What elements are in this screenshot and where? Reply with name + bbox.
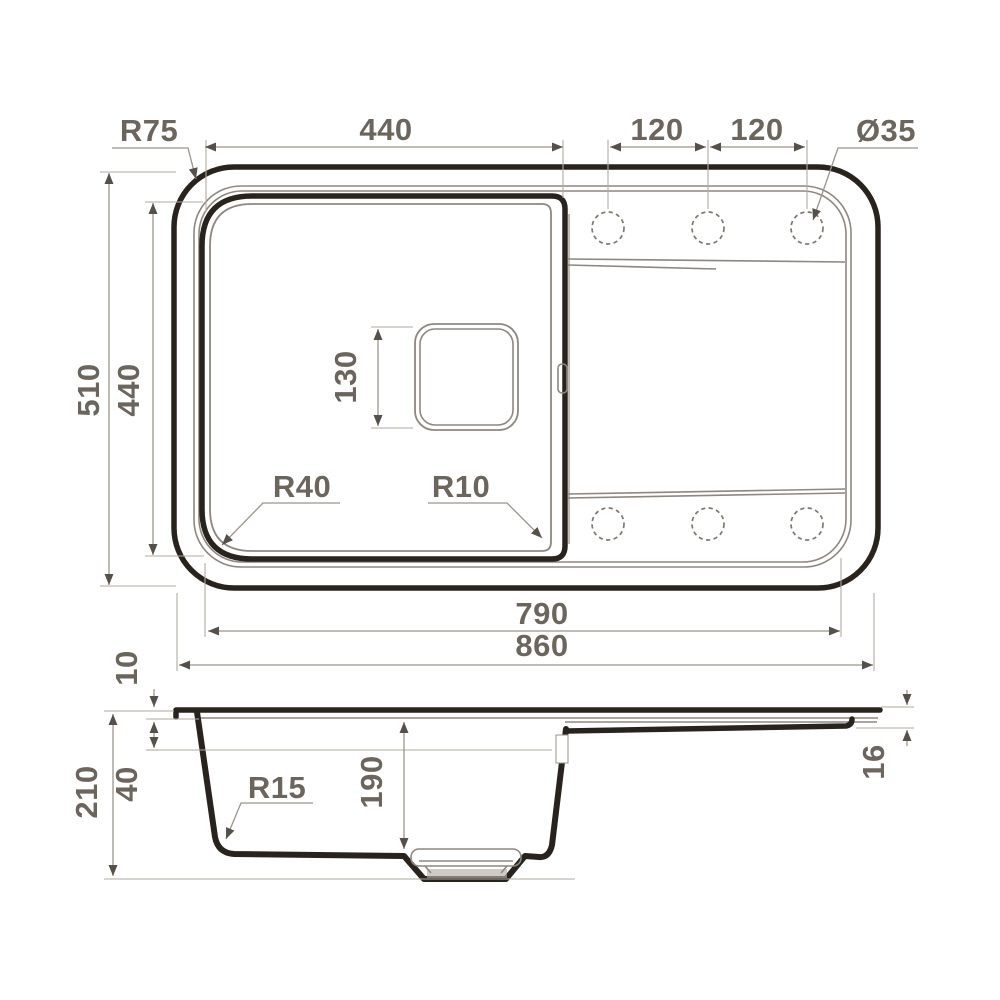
- label-hole-diameter: Ø35: [856, 113, 916, 148]
- tap-hole: [692, 508, 724, 540]
- bowl-inner-edge: [210, 204, 551, 551]
- label-hole-spacing-2: 120: [730, 112, 783, 147]
- bowl-outline: [202, 196, 565, 559]
- sink-dimension-drawing: R75 440 120 120 Ø35 510 440 130 R40 R10 …: [0, 0, 1000, 1000]
- tap-hole: [592, 508, 624, 540]
- label-rim-height: 10: [109, 650, 144, 685]
- label-radius-bowl-left: R40: [273, 469, 331, 504]
- label-drain-square: 130: [328, 350, 363, 403]
- label-bowl-depth: 190: [354, 755, 389, 808]
- section-drainboard-underside: [567, 719, 852, 731]
- label-bowl-height: 440: [111, 363, 146, 416]
- plan-view: [174, 167, 878, 588]
- label-inner-width: 790: [515, 596, 568, 631]
- drainboard-surface-lines: [568, 259, 845, 498]
- leader-radius-bowl-left: [222, 503, 340, 545]
- section-dimensions: 10 40 210 190 R15 16: [69, 650, 914, 879]
- tap-hole: [791, 212, 823, 244]
- drawing-page: R75 440 120 120 Ø35 510 440 130 R40 R10 …: [0, 0, 1000, 1000]
- drain-square: [415, 324, 518, 430]
- leader-hole-diameter: [813, 148, 918, 220]
- rim-edge-inner-line: [199, 191, 846, 562]
- leader-radius-bowl-right: [428, 503, 542, 538]
- drain-fitting: [411, 849, 521, 878]
- leader-radius-bottom: [226, 803, 313, 839]
- rim-edge-outer-line: [194, 186, 851, 567]
- tap-hole: [791, 508, 823, 540]
- tap-hole: [692, 212, 724, 244]
- sink-outer-edge: [174, 167, 878, 588]
- tap-hole: [592, 212, 624, 244]
- label-radius-bowl-right: R10: [432, 469, 490, 504]
- section-overflow-slot: [556, 735, 568, 763]
- label-radius-outer-corner: R75: [120, 113, 178, 148]
- label-hole-spacing-1: 120: [630, 112, 683, 147]
- label-overall-depth: 210: [69, 765, 104, 818]
- label-radius-bottom: R15: [248, 770, 306, 805]
- section-rim-top: [176, 710, 880, 717]
- label-overall-width: 860: [515, 628, 568, 663]
- label-bowl-width: 440: [359, 112, 412, 147]
- leader-radius-outer-corner: [112, 148, 196, 179]
- label-edge-thickness: 16: [856, 744, 891, 779]
- label-ledge-depth: 40: [109, 766, 144, 801]
- label-overall-height: 510: [71, 363, 106, 416]
